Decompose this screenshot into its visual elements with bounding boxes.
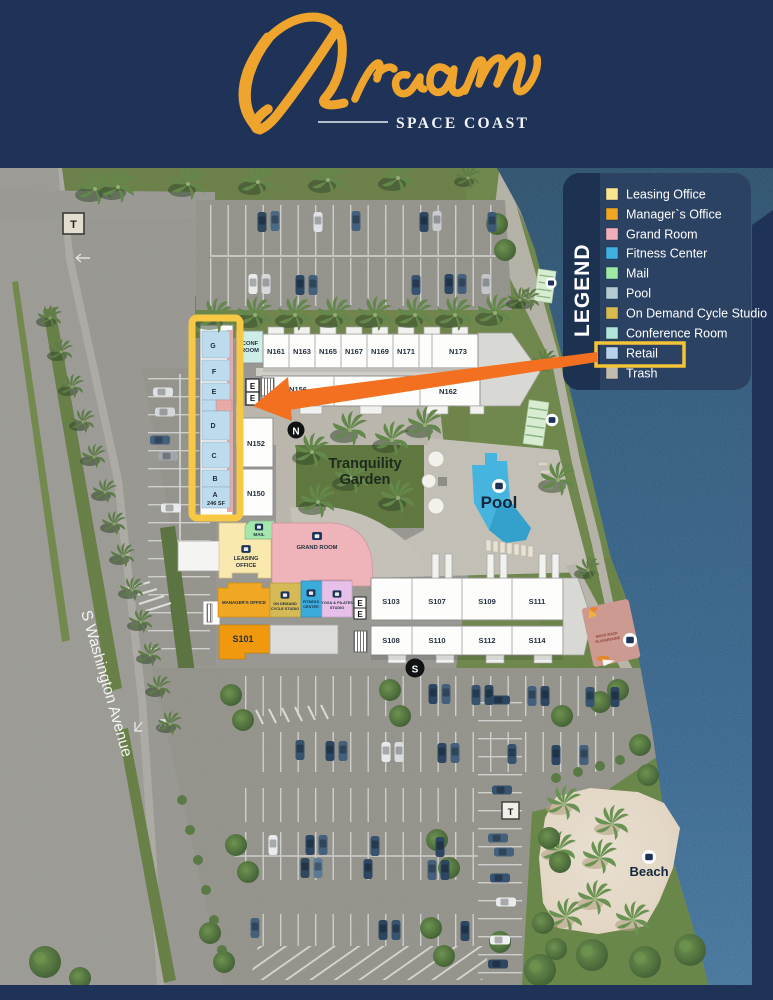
svg-text:C: C — [211, 453, 216, 460]
svg-text:N: N — [292, 427, 299, 438]
svg-text:CYCLE STUDIO: CYCLE STUDIO — [271, 607, 299, 611]
svg-text:Leasing Office: Leasing Office — [626, 188, 706, 202]
svg-text:E: E — [212, 389, 217, 396]
svg-text:MAIL: MAIL — [253, 532, 264, 537]
svg-text:S107: S107 — [428, 597, 446, 606]
svg-text:E: E — [250, 382, 256, 391]
svg-text:T: T — [508, 807, 514, 818]
svg-text:ON DEMAND: ON DEMAND — [273, 602, 297, 606]
svg-text:E: E — [250, 394, 256, 403]
svg-text:S111: S111 — [529, 597, 546, 606]
svg-text:T: T — [70, 219, 77, 231]
svg-text:Mail: Mail — [626, 267, 649, 281]
svg-text:OFFICE: OFFICE — [236, 563, 257, 569]
svg-text:Fitness Center: Fitness Center — [626, 247, 707, 261]
svg-text:Pool: Pool — [481, 493, 518, 512]
svg-text:S108: S108 — [382, 636, 400, 645]
svg-text:S114: S114 — [528, 636, 546, 645]
svg-text:S110: S110 — [428, 636, 445, 645]
svg-text:N162: N162 — [439, 387, 457, 396]
svg-text:N163: N163 — [293, 347, 311, 356]
svg-text:CENTER: CENTER — [303, 605, 319, 609]
svg-text:On Demand Cycle Studio: On Demand Cycle Studio — [626, 307, 767, 321]
svg-text:Beach: Beach — [629, 864, 668, 879]
svg-text:N161: N161 — [267, 347, 285, 356]
svg-text:Tranquility: Tranquility — [328, 456, 401, 472]
svg-text:LEASING: LEASING — [234, 556, 259, 562]
svg-text:A: A — [212, 492, 217, 499]
svg-text:SPACE COAST: SPACE COAST — [396, 115, 529, 132]
svg-text:ROOM: ROOM — [241, 348, 259, 354]
svg-text:S112: S112 — [478, 636, 495, 645]
svg-text:N165: N165 — [319, 347, 337, 356]
svg-text:S103: S103 — [382, 597, 400, 606]
svg-text:Manager`s Office: Manager`s Office — [626, 208, 722, 222]
svg-text:D: D — [210, 423, 215, 430]
svg-text:YOGA & PILATES: YOGA & PILATES — [321, 601, 353, 605]
svg-text:Trash: Trash — [626, 367, 658, 381]
svg-text:N169: N169 — [371, 347, 389, 356]
svg-text:N152: N152 — [247, 439, 265, 448]
svg-text:E: E — [357, 599, 363, 608]
svg-text:Retail: Retail — [626, 347, 658, 361]
svg-text:GRAND ROOM: GRAND ROOM — [297, 545, 338, 551]
svg-text:N167: N167 — [345, 347, 363, 356]
svg-text:MANAGER'S OFFICE: MANAGER'S OFFICE — [222, 600, 266, 605]
svg-text:S: S — [412, 665, 419, 676]
svg-text:S109: S109 — [478, 597, 496, 606]
svg-text:N150: N150 — [247, 489, 265, 498]
svg-text:FITNESS: FITNESS — [303, 600, 320, 604]
svg-text:Pool: Pool — [626, 287, 651, 301]
svg-text:F: F — [212, 369, 217, 376]
svg-text:LEGEND: LEGEND — [571, 243, 594, 337]
svg-text:B: B — [212, 476, 217, 483]
svg-text:CONF: CONF — [242, 341, 259, 347]
svg-text:Conference Room: Conference Room — [626, 327, 727, 341]
svg-text:N173: N173 — [449, 347, 467, 356]
svg-text:E: E — [357, 610, 363, 619]
svg-text:246 SF: 246 SF — [207, 501, 226, 507]
svg-text:N171: N171 — [397, 347, 415, 356]
svg-text:Grand Room: Grand Room — [626, 228, 698, 242]
svg-text:G: G — [210, 343, 216, 350]
svg-text:Garden: Garden — [340, 472, 391, 488]
svg-text:STUDIO: STUDIO — [330, 606, 344, 610]
svg-text:S101: S101 — [232, 634, 253, 644]
